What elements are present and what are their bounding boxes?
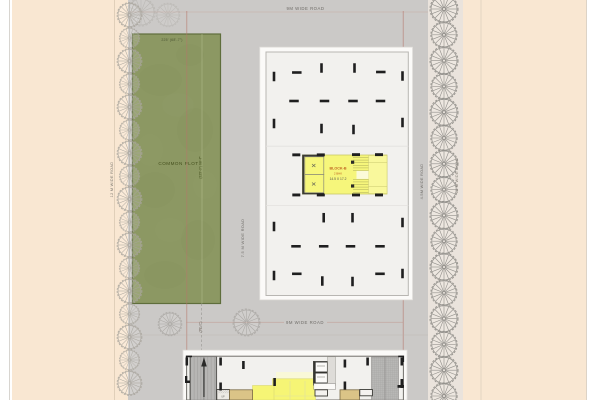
svg-text:2 BHK: 2 BHK: [334, 171, 342, 175]
svg-text:12 M WIDE ROAD: 12 M WIDE ROAD: [110, 162, 114, 198]
svg-text:(225'-0") 68'-7": (225'-0") 68'-7": [199, 156, 203, 179]
svg-text:4.5M WIDE ROAD: 4.5M WIDE ROAD: [420, 164, 424, 200]
svg-text:BLOCK-B: BLOCK-B: [329, 166, 346, 170]
svg-text:7.5 M WIDE ROAD: 7.5 M WIDE ROAD: [240, 219, 245, 258]
svg-text:12 M WIDE ROAD: 12 M WIDE ROAD: [455, 158, 459, 194]
svg-text:225' (68'-7"): 225' (68'-7"): [161, 38, 182, 42]
svg-text:14.5 X 17.2: 14.5 X 17.2: [330, 177, 347, 181]
svg-text:9M WIDE ROAD: 9M WIDE ROAD: [286, 320, 324, 325]
svg-text:9M WIDE ROAD: 9M WIDE ROAD: [287, 6, 325, 11]
svg-text:UP: UP: [221, 395, 225, 398]
svg-text:COMMON PLOT: COMMON PLOT: [158, 161, 198, 166]
svg-text:(78'-0"): (78'-0"): [199, 322, 203, 333]
